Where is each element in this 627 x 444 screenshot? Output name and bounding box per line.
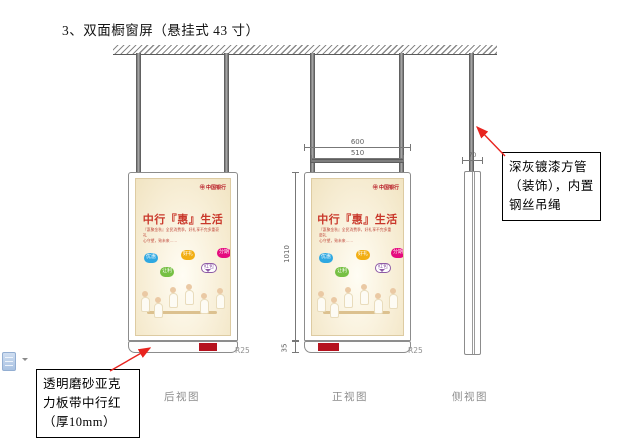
speech-bubble: 好礼 [356,250,370,260]
side-view-body [464,171,481,355]
speech-bubble: 优惠 [319,253,333,263]
rear-corner-radius-label: R25 [235,346,250,355]
front-view-label: 正视图 [332,389,368,404]
front-corner-radius-label: R25 [408,346,423,355]
clipboard-icon[interactable] [2,352,16,371]
chevron-down-icon[interactable] [22,358,28,364]
speech-bubble: 红包 [201,263,217,273]
boc-logo: ㊥ 中国银行 [373,184,399,191]
rear-screen-frame: ㊥ 中国银行 中行『惠』生活 『惠聚金秋』全民消费季，好礼享不完多重豪礼 心守望… [128,172,238,341]
ad-people-scene [136,279,230,335]
speech-bubble: 好礼 [181,250,195,260]
ad-subtext: 『惠聚金秋』全民消费季，好礼享不完多重豪礼 心守望，致未来…… [319,227,394,244]
dim-base-height: 35 [292,341,299,353]
drawing-page: 3、双面橱窗屏（悬挂式 43 寸） ㊥ 中国银行 中行『惠』生活 『惠聚金秋』全… [0,0,627,444]
dim-screen-height: 1010 [292,172,299,341]
front-base-bar [304,341,411,353]
rear-base-bar [128,341,238,353]
dim-inner-width: 510 [311,155,404,162]
speech-bubble: 分期 [391,248,404,258]
ad-people-scene [312,279,403,335]
ad-headline: 中行『惠』生活 [312,211,403,227]
side-view-label: 侧视图 [452,389,488,404]
speech-bubble: 优惠 [144,253,158,263]
front-screen-frame: ㊥ 中国银行 中行『惠』生活 『惠聚金秋』全民消费季，好礼享不完多重豪礼 心守望… [304,172,411,341]
speech-bubble: 让利 [160,267,174,277]
speech-bubble: 分期 [217,248,231,258]
rear-poster: ㊥ 中国银行 中行『惠』生活 『惠聚金秋』全民消费季，好礼享不完多重豪礼 心守望… [135,178,231,336]
dim-side-depth: 70 [462,157,483,164]
callout-acrylic-note: 透明磨砂亚克力板带中行红（厚10mm） [36,369,140,438]
ad-subtext: 『惠聚金秋』全民消费季，好礼享不完多重豪礼 心守望，致未来…… [143,227,221,244]
front-red-acrylic-strip [318,343,339,351]
ad-headline: 中行『惠』生活 [136,211,230,227]
rear-view-label: 后视图 [164,389,200,404]
speech-bubble: 红包 [375,263,391,273]
paste-options-button[interactable] [2,352,36,374]
pole-rear-left [136,53,141,172]
boc-logo: ㊥ 中国银行 [200,184,226,191]
rear-red-acrylic-strip [199,343,217,351]
page-title: 3、双面橱窗屏（悬挂式 43 寸） [62,19,260,39]
pole-rear-right [224,53,229,172]
callout-pipe-note: 深灰镀漆方管（装饰），内置钢丝吊绳 [502,152,601,221]
speech-bubble: 让利 [335,267,349,277]
ceiling-hatch [113,45,497,55]
front-poster: ㊥ 中国银行 中行『惠』生活 『惠聚金秋』全民消费季，好礼享不完多重豪礼 心守望… [311,178,404,336]
